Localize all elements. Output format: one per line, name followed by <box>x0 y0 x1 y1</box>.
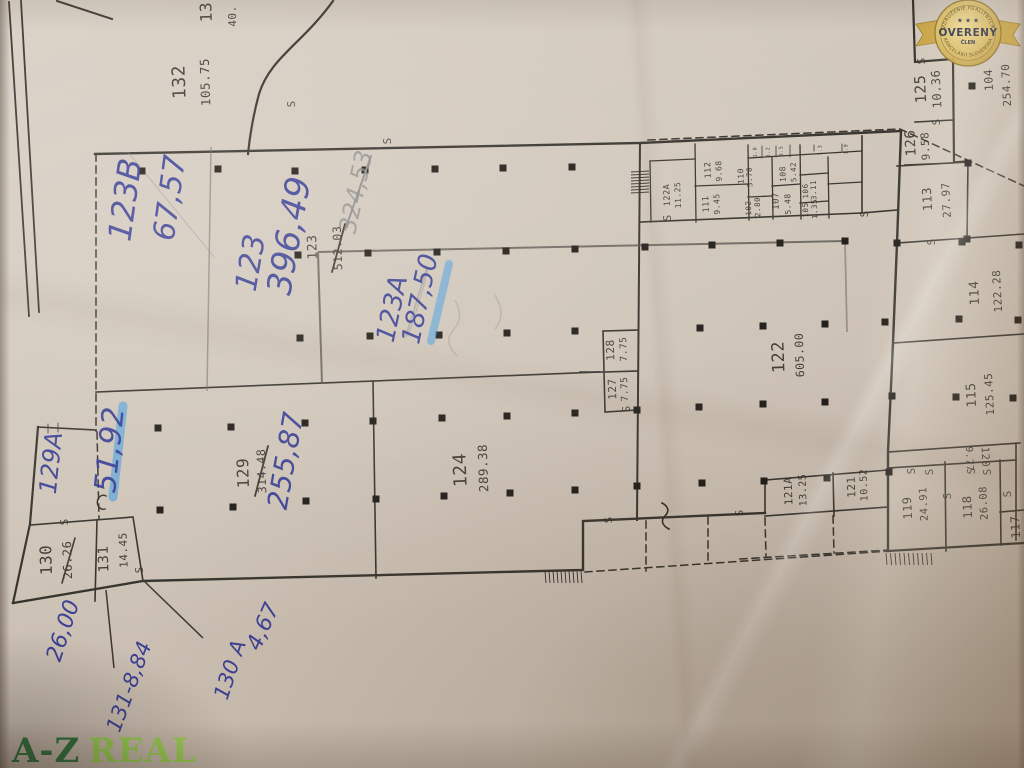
room-120-area: 9.77 <box>963 446 975 471</box>
s-marker: S <box>941 493 954 500</box>
room-120-number: 120 <box>979 447 992 468</box>
note-255-area: 255,87 <box>261 409 311 511</box>
micro-room-label: 1.5 <box>778 146 784 157</box>
note-130a-number: 130 A <box>209 637 251 703</box>
room-122-number: 122 <box>768 341 789 374</box>
s-marker: S <box>620 406 633 413</box>
note-324-pencil: 324,53 <box>334 148 379 236</box>
micro-room-label: 1.8 <box>752 147 758 158</box>
room-122a-number: 122A <box>662 184 673 207</box>
room-112-number: 112 <box>703 161 714 178</box>
room-114-number: 114 <box>967 280 983 306</box>
s-marker: S <box>285 101 298 108</box>
room-129-number: 129 <box>233 458 253 489</box>
note-130a-area: 4,67 <box>242 599 285 654</box>
s-marker: S <box>381 138 394 145</box>
room-131-number: 131 <box>96 545 113 572</box>
s-marker: S <box>905 468 918 475</box>
note-123b-area: 67,57 <box>147 153 194 243</box>
s-marker: S <box>915 58 928 65</box>
room-102-area: 2.80 <box>753 197 763 217</box>
room-127-area: 7.75 <box>619 376 631 401</box>
note-129a-area: 51,92 <box>88 405 132 494</box>
room-119-number: 119 <box>900 496 915 520</box>
s-marker: S <box>661 215 674 222</box>
room-131-area: 14.45 <box>116 532 130 568</box>
room-122a-area: 11.25 <box>673 182 683 209</box>
room-112-area: 9.68 <box>714 160 724 182</box>
room-132-number: 132 <box>168 65 190 100</box>
room-117-number: 117 <box>1008 515 1023 539</box>
room-126-area: 9.58 <box>918 131 932 160</box>
s-marker: S <box>1001 491 1014 498</box>
room-13x-area: 40. <box>226 5 240 27</box>
agency-logo-part1: A-Z <box>11 731 80 768</box>
note-131-884: 131-8,84 <box>102 638 157 735</box>
room-107-area: 5.48 <box>783 193 793 215</box>
s-marker: S <box>133 567 146 574</box>
s-marker: S <box>930 119 943 126</box>
micro-room-label: 1.9 <box>843 144 849 155</box>
room-108-area: 5.42 <box>789 162 799 182</box>
note-2600: 26,00 <box>42 597 85 665</box>
room-125-number: 125 <box>911 74 930 103</box>
room-118-number: 118 <box>960 495 975 519</box>
s-marker: S <box>602 517 615 524</box>
room-121a-number: 121A <box>782 477 796 506</box>
room-124-number: 124 <box>449 453 471 488</box>
room-107-number: 107 <box>771 192 782 210</box>
note-129a-number: 129A <box>34 430 68 495</box>
printed-labels: 132 105.75 13 40. 123 512.03 124 289.38 … <box>36 2 1023 580</box>
room-115-number: 115 <box>964 382 980 408</box>
room-126-number: 126 <box>902 129 919 157</box>
badge-stars: ★ ★ ★ <box>957 17 979 25</box>
verified-badge: ZDRUŽENIE REALITNÝCH ★ ★ ★ OVERENÝ ČLEN … <box>916 0 1020 66</box>
floor-plan-photo: SSSSSSSSSSSSSSSSSS 132 105.75 13 40. 123… <box>0 0 1024 768</box>
s-marker: S <box>981 469 994 476</box>
room-13x-number: 13 <box>196 2 216 23</box>
leader-lines <box>106 582 203 668</box>
room-121-number: 121 <box>845 476 859 498</box>
room-122-area: 605.00 <box>792 333 808 378</box>
agency-logo: A-ZREAL <box>11 731 197 768</box>
room-127-number: 127 <box>606 378 620 400</box>
badge-member: ČLEN <box>961 39 975 46</box>
handwritten-notes: 123B 67,57 123 396,49 123A 187,50 129A 5… <box>34 148 445 735</box>
s-marker: S <box>923 469 936 476</box>
s-marker: S <box>925 239 938 246</box>
s-marker: S <box>733 510 746 517</box>
micro-room-label: 1.3 <box>817 145 823 156</box>
s-markers: SSSSSSSSSSSSSSSSSS <box>58 58 1014 574</box>
room-124-area: 289.38 <box>475 444 492 493</box>
room-105-area: 1.35 <box>810 199 820 219</box>
room-113-number: 113 <box>919 187 935 212</box>
room-111-area: 9.45 <box>712 193 722 215</box>
room-104-area: 254.70 <box>999 63 1014 106</box>
room-128-area: 7.75 <box>618 336 630 361</box>
room-113-area: 27.97 <box>939 182 954 218</box>
s-marker: S <box>58 519 71 526</box>
room-104-number: 104 <box>981 69 996 92</box>
room-121-area: 10.52 <box>858 468 870 501</box>
room-125-area: 10.36 <box>928 69 944 108</box>
note-123b-number: 123B <box>100 156 149 244</box>
agency-logo-part2: REAL <box>88 731 196 768</box>
room-102-number: 102 <box>744 200 754 215</box>
room-118-area: 26.08 <box>977 486 991 521</box>
floor-plan-svg: SSSSSSSSSSSSSSSSSS 132 105.75 13 40. 123… <box>0 0 1024 768</box>
room-115-area: 125.45 <box>982 372 997 415</box>
room-132-area: 105.75 <box>197 58 214 107</box>
room-106-area: 3.11 <box>809 180 819 200</box>
room-110-area: 5.70 <box>745 167 755 187</box>
room-128-number: 128 <box>604 339 618 361</box>
s-marker: S <box>858 211 871 218</box>
room-119-area: 24.91 <box>917 487 931 522</box>
room-108-number: 108 <box>778 166 788 182</box>
micro-room-label: 1.2 <box>765 147 771 158</box>
room-121a-area: 13.25 <box>797 473 809 506</box>
room-111-number: 111 <box>701 195 712 212</box>
room-130-number: 130 <box>36 545 56 576</box>
badge-title: OVERENÝ <box>938 26 997 39</box>
room-114-area: 122.28 <box>990 269 1005 312</box>
room-105-number: 105 <box>801 202 811 217</box>
